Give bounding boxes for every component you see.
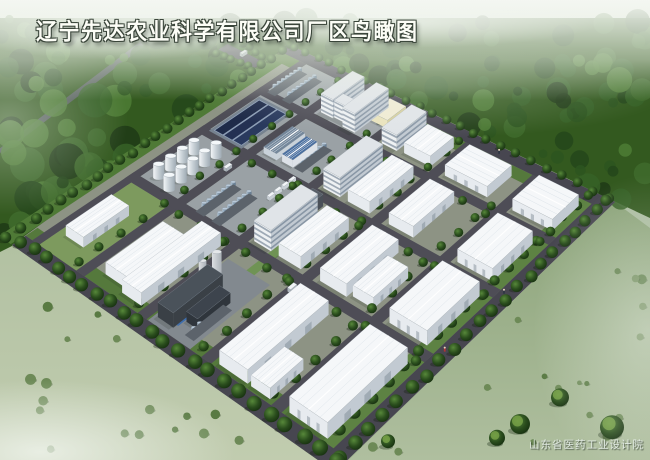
bush <box>394 448 402 456</box>
bush <box>211 410 221 420</box>
scene: 辽宁先达农业科学有限公司厂区鸟瞰图 山东省医药工业设计院 <box>0 0 650 460</box>
bush <box>484 384 491 391</box>
bush <box>368 442 378 452</box>
bush <box>515 317 521 323</box>
person <box>498 149 500 154</box>
person <box>444 347 446 352</box>
bush <box>64 336 70 342</box>
page-title: 辽宁先达农业科学有限公司厂区鸟瞰图 <box>36 15 636 47</box>
person <box>503 289 505 294</box>
bush <box>235 436 244 445</box>
birdseye-rendering <box>0 0 650 460</box>
bush <box>113 335 121 343</box>
bush <box>95 311 102 318</box>
credit-text: 山东省医药工业设计院 <box>529 437 644 452</box>
bush <box>43 302 53 312</box>
